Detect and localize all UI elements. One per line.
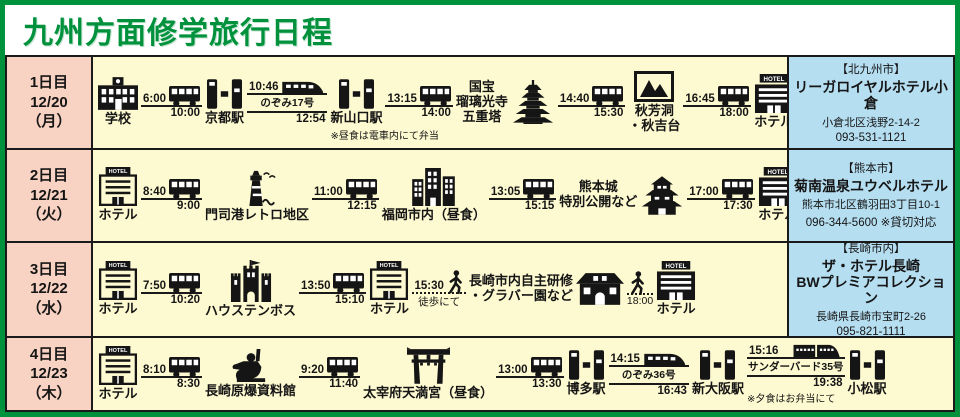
arrive-time: 16:43 — [609, 385, 689, 397]
depart-time: 6:00 — [143, 93, 166, 105]
arrive-time: 12:54 — [247, 113, 327, 125]
depart-time: 15:30 — [414, 280, 443, 292]
depart-time: 8:40 — [143, 186, 166, 198]
day-cell: 3日目 12/22 （水） — [7, 243, 93, 336]
depart-time: 15:16 — [749, 345, 778, 357]
day-date: 12/22 — [30, 279, 68, 299]
place: 太宰府天満宮（昼食） — [363, 347, 493, 401]
place: HOTELホテル — [98, 261, 138, 317]
route: HOTELホテル 8:40 9:00 門司港レトロ地区 11:00 12:15 … — [93, 150, 787, 241]
arrive-time: 17:30 — [687, 200, 754, 212]
place-label: 国宝 瑠璃光寺 五重塔 — [456, 80, 508, 125]
depart-time: 13:05 — [491, 186, 520, 198]
hotel-solid-icon: HOTEL — [754, 74, 787, 113]
svg-text:HOTEL: HOTEL — [109, 169, 128, 175]
hotel-name: ザ・ホテル長崎 BWプレミアコレクション — [792, 258, 950, 306]
pagoda-icon — [511, 80, 555, 124]
shinkansen-icon — [643, 351, 687, 367]
hotel-name: 菊南温泉ユウベルホテル — [794, 178, 948, 194]
svg-text:HOTEL: HOTEL — [109, 348, 128, 354]
arrive-time: 15:10 — [299, 294, 366, 306]
transit: 7:50 10:20 — [141, 273, 202, 306]
place-label: 小松駅 — [848, 382, 887, 397]
transit: 8:10 8:30 — [141, 357, 202, 390]
place: HOTELホテル — [98, 167, 138, 223]
place-label: ホテル — [98, 208, 137, 223]
depart-time: 7:50 — [143, 280, 166, 292]
bus-icon — [333, 273, 364, 294]
place: 新山口駅※昼食は電車内にて弁当 — [330, 79, 382, 126]
transit: 18:00 — [627, 271, 653, 307]
day-weekday: （火） — [26, 205, 71, 225]
place: 秋芳洞 ・秋吉台 — [628, 71, 680, 134]
bus-icon — [327, 357, 358, 378]
arrive-time: 19:38 — [747, 377, 845, 389]
hotel-address: 熊本市北区鶴羽田3丁目10-1 — [802, 196, 940, 212]
hotel-address: 小倉北区浅野2-14-2 — [822, 114, 920, 130]
place-label: ホテル — [657, 302, 696, 317]
depart-time: 14:15 — [611, 353, 640, 365]
depart-time: 11:00 — [314, 186, 343, 198]
hotel-info: 【長崎市内】 ザ・ホテル長崎 BWプレミアコレクション 長崎県長崎市宝町2-26… — [787, 243, 953, 336]
itinerary-table: 1日目 12/20 （月） 学校 6:00 10:00 京都駅 10:46 のぞ… — [5, 55, 955, 412]
theme-park-castle-icon — [229, 260, 273, 302]
train-name: サンダーバード35号 — [747, 359, 845, 377]
shinkansen-icon — [281, 79, 325, 95]
peace-statue-icon — [231, 349, 271, 382]
walk-note: 徒歩にて — [412, 294, 465, 309]
place-label: 新山口駅 — [330, 111, 382, 126]
transit: 14:40 15:30 — [558, 86, 625, 119]
place: 熊本城 特別公開など — [559, 176, 684, 215]
svg-text:HOTEL: HOTEL — [767, 169, 787, 176]
bus-icon — [531, 357, 562, 378]
bus-icon — [169, 273, 200, 294]
day-cell: 4日目 12/23 （木） — [7, 338, 93, 410]
torii-icon — [407, 347, 450, 384]
bus-icon — [420, 86, 451, 107]
place: 京都駅 — [205, 79, 244, 126]
hotel-city: 【北九州市】 — [837, 61, 906, 77]
place-label: 福岡市内（昼食） — [382, 208, 486, 223]
transit-note: ※夕食はお弁当にて — [747, 390, 845, 405]
place-label: 新大阪駅 — [692, 382, 744, 397]
hotel-solid-icon: HOTEL — [758, 167, 787, 206]
hotel-outline-icon: HOTEL — [369, 261, 409, 300]
day-weekday: （木） — [26, 384, 71, 404]
day-cell: 2日目 12/21 （火） — [7, 150, 93, 241]
transit: 17:00 17:30 — [687, 179, 754, 212]
hotel-phone: 093-531-1121 — [836, 132, 907, 144]
bus-icon — [346, 179, 377, 200]
depart-time: 9:20 — [301, 364, 324, 376]
day-number: 3日目 — [30, 260, 68, 280]
arrive-time: 10:00 — [141, 107, 202, 119]
transit: 15:30 徒歩にて — [412, 270, 465, 309]
arrive-time: 18:00 — [683, 107, 750, 119]
arrive-time: 11:40 — [299, 378, 360, 390]
day-number: 1日目 — [30, 73, 68, 93]
hotel-info: 【北九州市】 リーガロイヤルホテル小倉 小倉北区浅野2-14-2 093-531… — [787, 57, 953, 148]
hotel-name: リーガロイヤルホテル小倉 — [792, 79, 950, 111]
day-number: 4日目 — [30, 345, 68, 365]
place: HOTELホテル — [758, 167, 787, 223]
day-date: 12/20 — [30, 93, 68, 113]
day-row: 2日目 12/21 （火） HOTELホテル 8:40 9:00 門司港レトロ地… — [7, 148, 953, 241]
title-bar: 九州方面修学旅行日程 — [5, 5, 955, 55]
day-weekday: （水） — [26, 299, 71, 319]
day-weekday: （月） — [26, 112, 71, 132]
place-label: ホテル — [754, 115, 787, 130]
day-row: 1日目 12/20 （月） 学校 6:00 10:00 京都駅 10:46 のぞ… — [7, 57, 953, 148]
station-gate-icon — [339, 79, 374, 109]
arrive-time: 10:20 — [141, 294, 202, 306]
depart-time: 13:50 — [301, 280, 330, 292]
place-label: 博多駅 — [567, 382, 606, 397]
bus-icon — [169, 86, 200, 107]
day-row: 3日目 12/22 （水） HOTELホテル 7:50 10:20 ハウステンボ… — [7, 241, 953, 336]
depart-time: 10:46 — [249, 81, 278, 93]
transit: 13:15 14:00 — [385, 86, 452, 119]
day-date: 12/23 — [30, 364, 68, 384]
hotel-city: 【長崎市内】 — [837, 240, 906, 256]
place-label: 門司港レトロ地区 — [205, 208, 309, 223]
transit: 9:20 11:40 — [299, 357, 360, 390]
place: 新大阪駅 — [692, 350, 744, 397]
place: 門司港レトロ地区 — [205, 168, 309, 223]
page-title: 九州方面修学旅行日程 — [23, 8, 333, 52]
bus-icon — [169, 357, 200, 378]
place: 国宝 瑠璃光寺 五重塔 — [456, 80, 555, 125]
day-number: 2日目 — [30, 166, 68, 186]
hotel-phone: 096-344-5600 ※貸切対応 — [806, 214, 936, 230]
day-cell: 1日目 12/20 （月） — [7, 57, 93, 148]
hotel-city: 【熊本市】 — [842, 160, 900, 176]
walk-note: 18:00 — [627, 295, 653, 307]
arrive-time: 15:30 — [558, 107, 625, 119]
hotel-outline-icon: HOTEL — [98, 261, 138, 300]
place: 学校 — [98, 77, 138, 127]
transit: 6:00 10:00 — [141, 86, 202, 119]
hotel-outline-icon: HOTEL — [98, 167, 138, 206]
depart-time: 13:15 — [387, 93, 416, 105]
western-house-icon — [576, 273, 624, 305]
train-name: のぞみ17号 — [247, 95, 327, 113]
depart-time: 8:10 — [143, 364, 166, 376]
place: 長崎原爆資料館 — [205, 349, 296, 399]
bus-icon — [718, 86, 749, 107]
transit: 13:00 13:30 — [496, 357, 563, 390]
place: HOTELホテル — [98, 346, 138, 402]
place-note: ※昼食は電車内にて弁当 — [330, 127, 438, 142]
bus-icon — [592, 86, 623, 107]
day-row: 4日目 12/23 （木） HOTELホテル 8:10 8:30 長崎原爆資料館… — [7, 336, 953, 410]
place: ハウステンボス — [205, 260, 296, 319]
route: 学校 6:00 10:00 京都駅 10:46 のぞみ17号 12:54 新山口… — [93, 57, 787, 148]
depart-time: 13:00 — [498, 364, 527, 376]
arrive-time: 14:00 — [385, 107, 452, 119]
place: 長崎市内自主研修 ・グラバー園など — [469, 273, 624, 305]
school-icon — [98, 77, 138, 110]
svg-text:HOTEL: HOTEL — [666, 263, 687, 270]
svg-text:HOTEL: HOTEL — [380, 263, 399, 269]
place: HOTELホテル — [369, 261, 409, 317]
svg-text:HOTEL: HOTEL — [763, 76, 784, 83]
hotel-solid-icon: HOTEL — [656, 261, 696, 300]
japanese-castle-icon — [640, 176, 684, 215]
arrive-time: 13:30 — [496, 378, 563, 390]
place-label: 長崎市内自主研修 ・グラバー園など — [469, 274, 573, 304]
place-label: 学校 — [105, 112, 131, 127]
place: HOTELホテル — [656, 261, 696, 317]
transit: 10:46 のぞみ17号 12:54 — [247, 79, 327, 125]
walker-icon — [447, 270, 464, 294]
limited-express-icon — [793, 343, 843, 359]
place: HOTELホテル — [754, 74, 787, 130]
arrive-time: 9:00 — [141, 200, 202, 212]
transit: 13:50 15:10 — [299, 273, 366, 306]
station-gate-icon — [850, 350, 885, 380]
transit: 16:45 18:00 — [683, 86, 750, 119]
lighthouse-icon — [236, 168, 278, 206]
itinerary-poster: 九州方面修学旅行日程 1日目 12/20 （月） 学校 6:00 10:00 京… — [0, 0, 960, 417]
station-gate-icon — [207, 79, 242, 109]
arrive-time: 8:30 — [141, 378, 202, 390]
transit: 11:00 12:15 — [312, 179, 379, 212]
hotel-info: 【熊本市】 菊南温泉ユウベルホテル 熊本市北区鶴羽田3丁目10-1 096-34… — [787, 150, 953, 241]
place-label: ハウステンボス — [205, 304, 296, 319]
place-label: 太宰府天満宮（昼食） — [363, 386, 493, 401]
bus-icon — [523, 179, 554, 200]
place-label: ホテル — [370, 302, 409, 317]
place-label: 熊本城 特別公開など — [559, 180, 637, 210]
station-gate-icon — [700, 350, 735, 380]
place: 小松駅 — [848, 350, 887, 397]
hotel-outline-icon: HOTEL — [98, 346, 138, 385]
place-label: ホテル — [98, 302, 137, 317]
depart-time: 14:40 — [560, 93, 589, 105]
bus-icon — [722, 179, 753, 200]
depart-time: 16:45 — [685, 93, 714, 105]
day-date: 12/21 — [30, 186, 68, 206]
hotel-address: 長崎県長崎市宝町2-26 — [816, 308, 926, 324]
scenic-picture-icon — [634, 71, 674, 102]
place-label: ホテル — [98, 387, 137, 402]
transit: 15:16 サンダーバード35号 19:38 ※夕食はお弁当にて — [747, 343, 845, 405]
train-name: のぞみ36号 — [609, 367, 689, 385]
route: HOTELホテル 8:10 8:30 長崎原爆資料館 9:20 11:40 太宰… — [93, 338, 953, 410]
city-buildings-icon — [412, 168, 455, 206]
place-label: 秋芳洞 ・秋吉台 — [628, 104, 680, 134]
place-label: ホテル — [758, 208, 787, 223]
arrive-time: 15:15 — [489, 200, 556, 212]
svg-text:HOTEL: HOTEL — [109, 263, 128, 269]
transit: 8:40 9:00 — [141, 179, 202, 212]
place: 福岡市内（昼食） — [382, 168, 486, 223]
place: 博多駅 — [567, 350, 606, 397]
route: HOTELホテル 7:50 10:20 ハウステンボス 13:50 15:10 … — [93, 243, 787, 336]
place-label: 京都駅 — [205, 111, 244, 126]
transit: 13:05 15:15 — [489, 179, 556, 212]
transit: 14:15 のぞみ36号 16:43 — [609, 351, 689, 397]
station-gate-icon — [569, 350, 604, 380]
depart-time: 17:00 — [689, 186, 718, 198]
place-label: 長崎原爆資料館 — [205, 384, 296, 399]
arrive-time: 12:15 — [312, 200, 379, 212]
walker-icon — [629, 271, 646, 295]
bus-icon — [169, 179, 200, 200]
